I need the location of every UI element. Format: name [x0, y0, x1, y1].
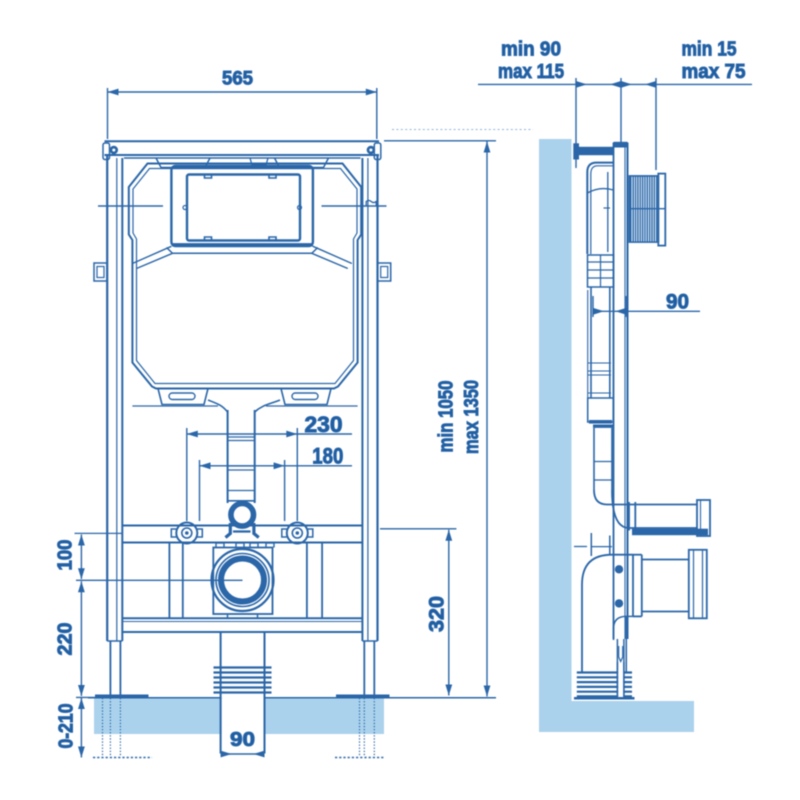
svg-text:min 15: min 15 — [682, 39, 737, 61]
svg-text:90: 90 — [666, 291, 689, 314]
svg-text:100: 100 — [55, 540, 77, 571]
svg-text:320: 320 — [426, 596, 449, 632]
svg-text:180: 180 — [312, 444, 343, 469]
svg-text:max 1350: max 1350 — [461, 380, 483, 454]
svg-text:min 90: min 90 — [501, 39, 561, 61]
svg-text:min 1050: min 1050 — [436, 381, 458, 453]
svg-text:max 115: max 115 — [498, 61, 564, 83]
svg-text:230: 230 — [305, 412, 343, 437]
svg-text:220: 220 — [55, 623, 77, 656]
svg-text:max 75: max 75 — [682, 61, 746, 83]
svg-text:0-210: 0-210 — [56, 704, 78, 749]
svg-text:565: 565 — [222, 67, 253, 89]
svg-text:90: 90 — [230, 729, 255, 751]
